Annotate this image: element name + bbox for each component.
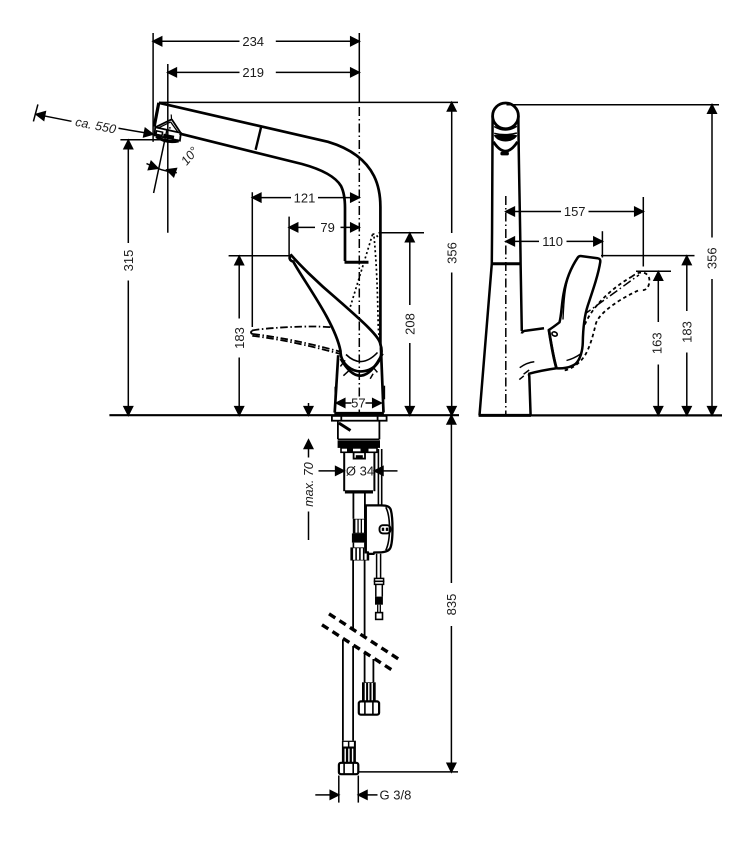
svg-text:Ø 34: Ø 34 [346,464,374,479]
svg-text:219: 219 [242,65,264,80]
svg-text:183: 183 [680,321,695,343]
svg-text:max. 70: max. 70 [302,462,316,507]
svg-text:234: 234 [242,34,264,49]
svg-text:356: 356 [444,242,459,264]
svg-text:163: 163 [650,332,665,354]
svg-text:183: 183 [232,327,247,349]
svg-text:G 3/8: G 3/8 [380,788,412,803]
svg-text:110: 110 [542,234,563,249]
svg-text:79: 79 [320,220,334,235]
svg-text:356: 356 [705,247,720,269]
svg-text:835: 835 [444,594,459,616]
svg-text:121: 121 [294,190,316,205]
svg-text:315: 315 [121,250,136,272]
svg-text:208: 208 [403,313,418,335]
svg-text:57: 57 [351,396,365,411]
svg-text:157: 157 [564,204,586,219]
